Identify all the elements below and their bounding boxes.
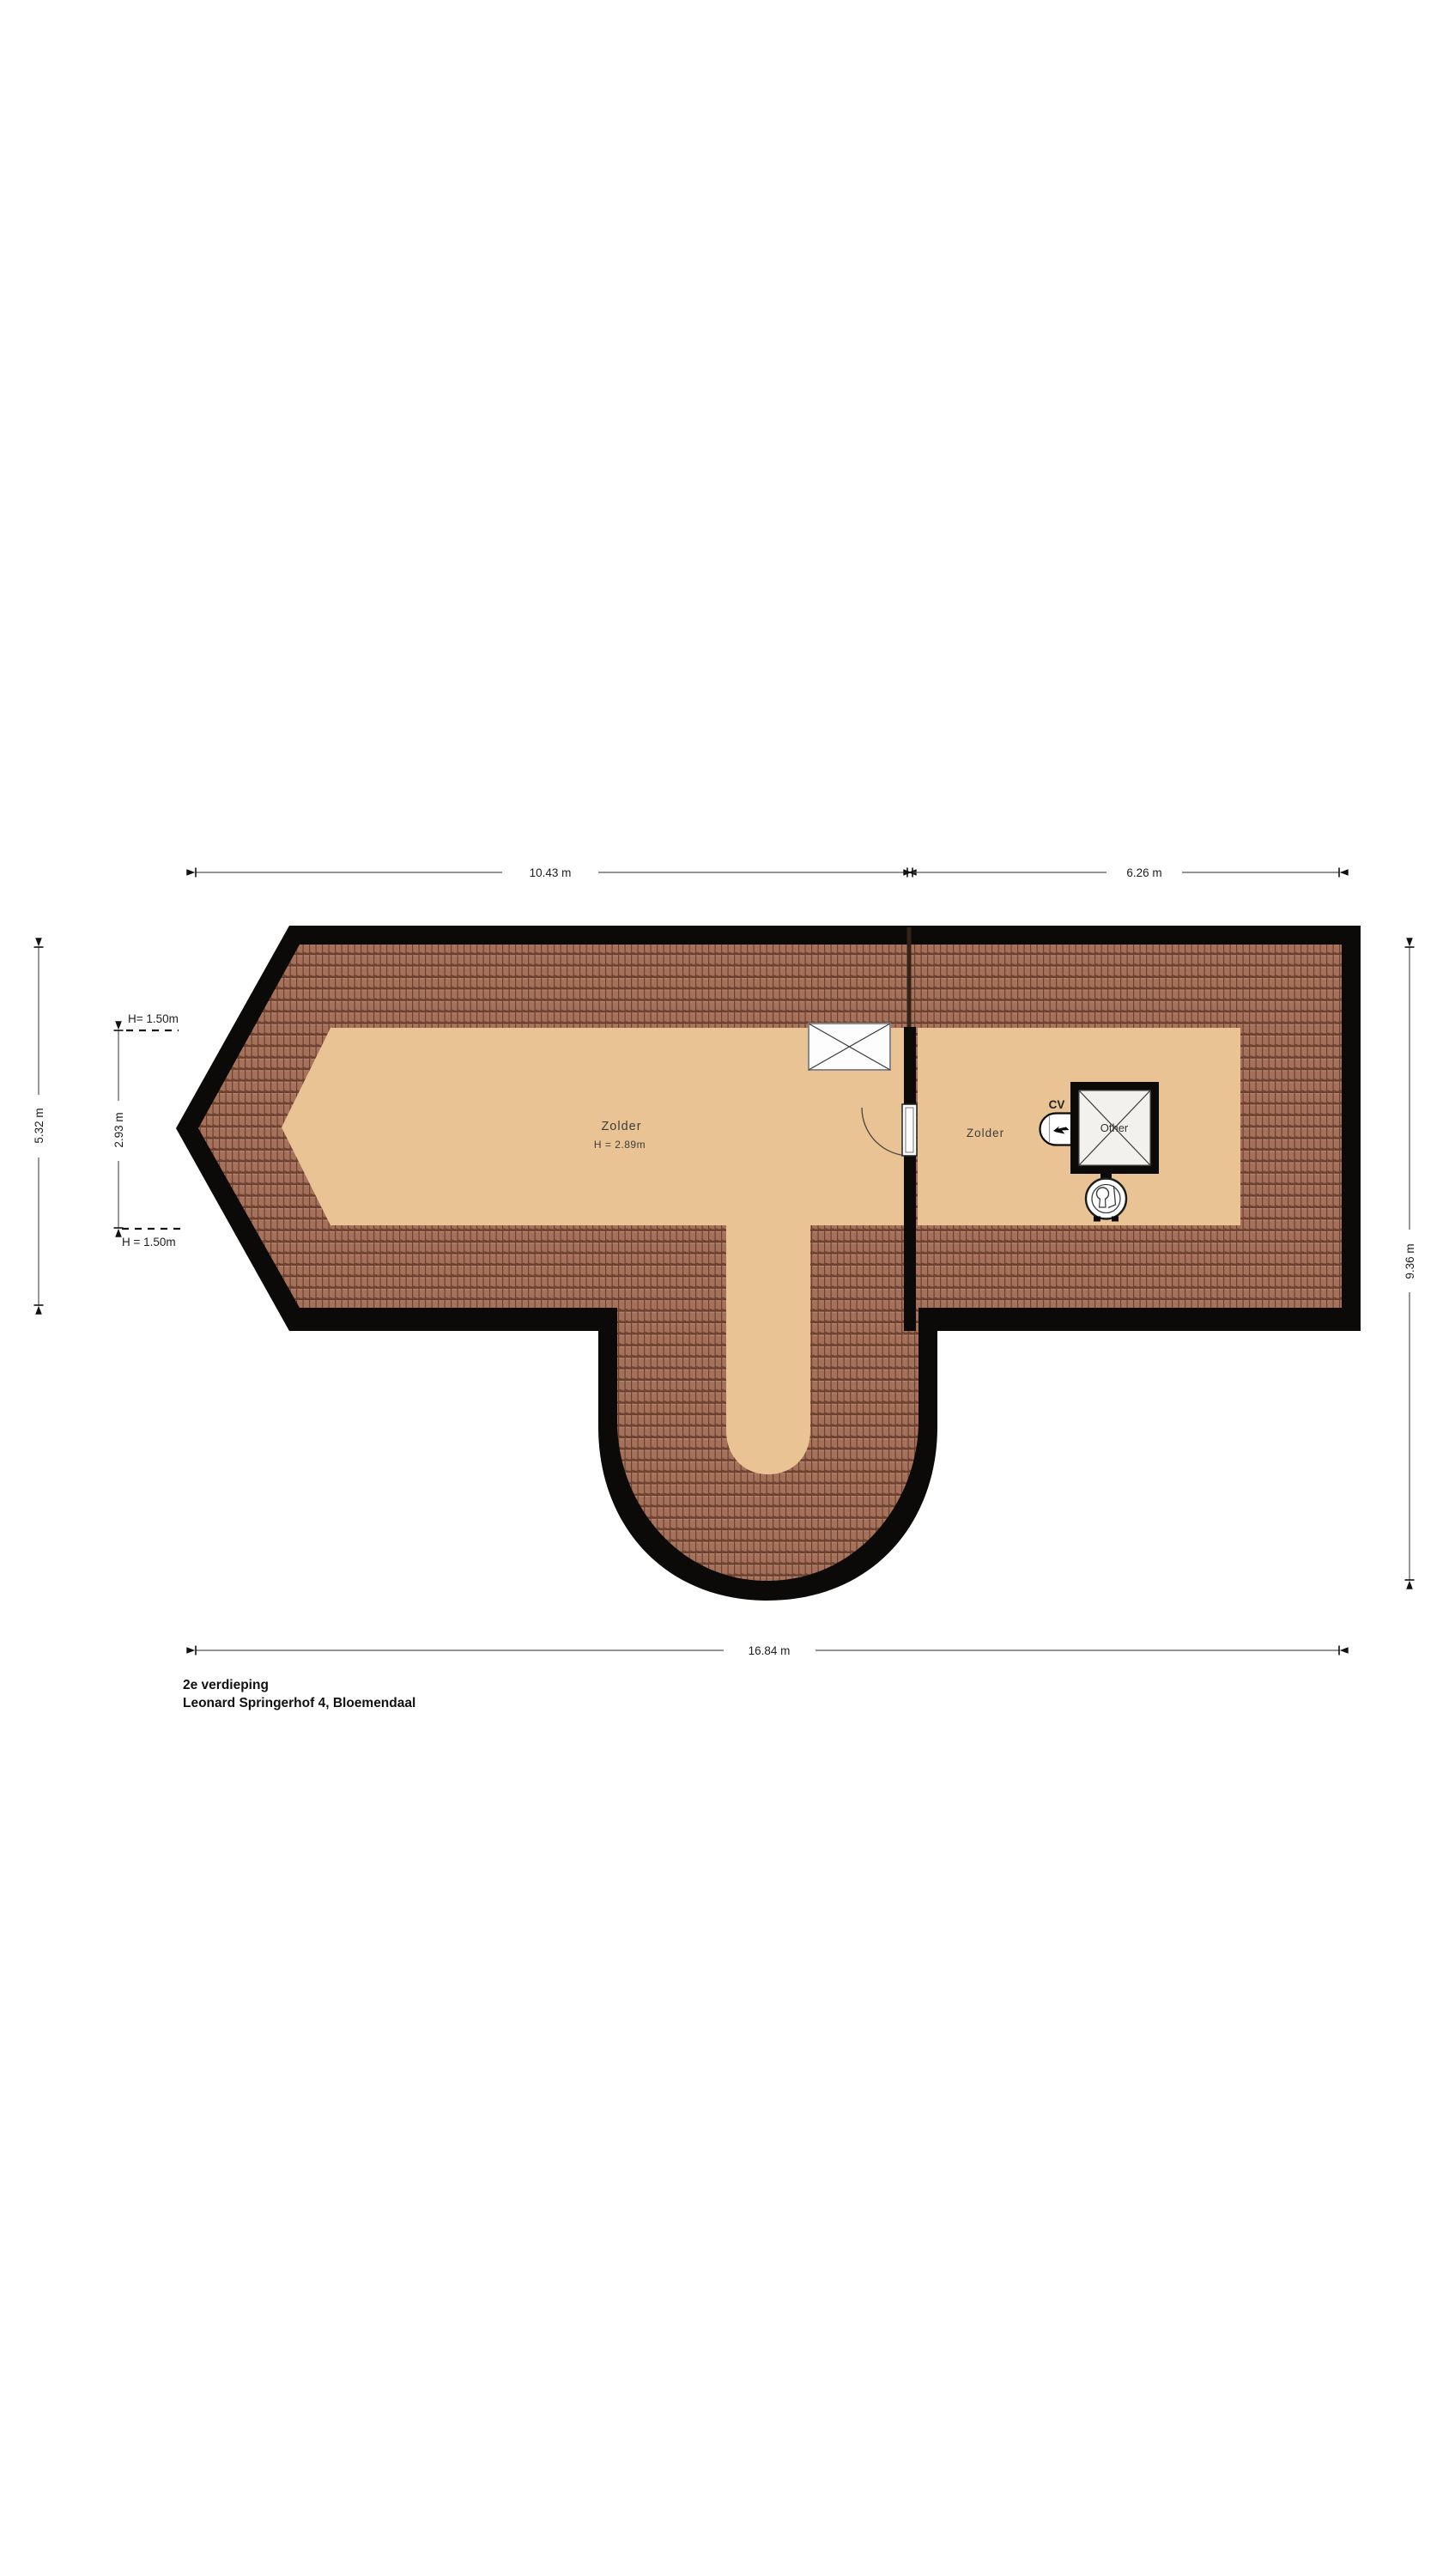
skylight [809,1024,890,1070]
dim-bottom-label: 16.84 m [749,1644,791,1657]
shaft-label: Other [1100,1121,1129,1134]
building: Other CV Zolder H = 2.89m Zolder [176,926,1361,1601]
appliance-foot-right [1112,1217,1119,1222]
dim-left-outer-label: 5.32 m [33,1108,45,1143]
height-line-bottom-label: H = 1.50m [122,1236,176,1249]
dividing-wall-upper [904,1027,916,1104]
appliance-bulb-neck [1100,1199,1106,1207]
dim-right-label: 9.36 m [1404,1243,1416,1279]
dividing-wall-lower [904,1156,916,1331]
floor-title: 2e verdieping [183,1678,269,1692]
door-leaf [902,1104,917,1156]
dim-top-right-label: 6.26 m [1126,866,1161,879]
room-height-zolder-left: H = 2.89m [594,1139,646,1151]
room-label-zolder-right: Zolder [967,1127,1004,1139]
appliance-bulb-icon [1097,1188,1109,1200]
floorplan-page: Other CV Zolder H = 2.89m Zolder [0,0,1449,2576]
shaft: Other [1070,1082,1159,1174]
appliance-foot-left [1094,1217,1100,1222]
dim-top-left-label: 10.43 m [530,866,572,879]
title-block: 2e verdieping Leonard Springerhof 4, Blo… [183,1678,415,1710]
cv-label: CV [1049,1098,1065,1111]
room-label-zolder-left: Zolder [601,1120,641,1133]
appliance-connector [1100,1170,1112,1178]
stairwell-floor [726,1222,810,1474]
address-line: Leonard Springerhof 4, Bloemendaal [183,1696,415,1710]
dim-left-inner-label: 2.93 m [112,1112,125,1147]
height-line-top-label: H= 1.50m [128,1012,179,1025]
dividing-wall-roof-line [907,927,912,1028]
floorplan-canvas: Other CV Zolder H = 2.89m Zolder [0,0,1449,2576]
